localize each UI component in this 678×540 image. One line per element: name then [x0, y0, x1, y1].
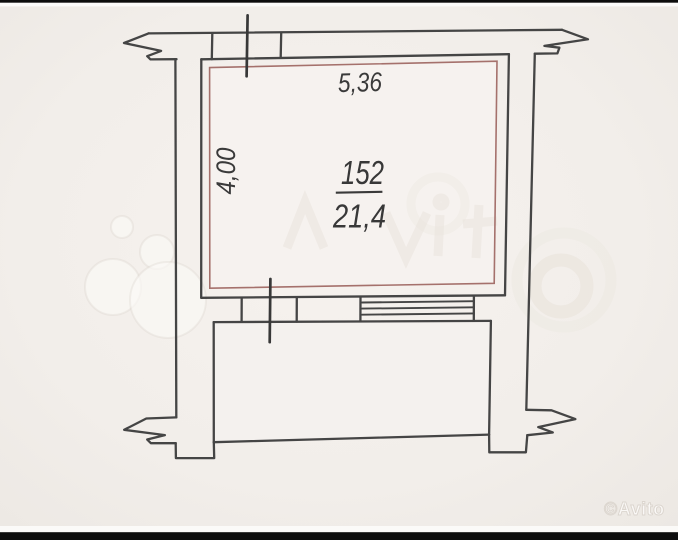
svg-text:21,4: 21,4 [332, 198, 386, 235]
svg-text:©Avito: ©Avito [604, 499, 665, 519]
svg-text:5,36: 5,36 [338, 67, 384, 98]
svg-text:152: 152 [341, 154, 384, 191]
svg-text:4,00: 4,00 [211, 148, 241, 195]
